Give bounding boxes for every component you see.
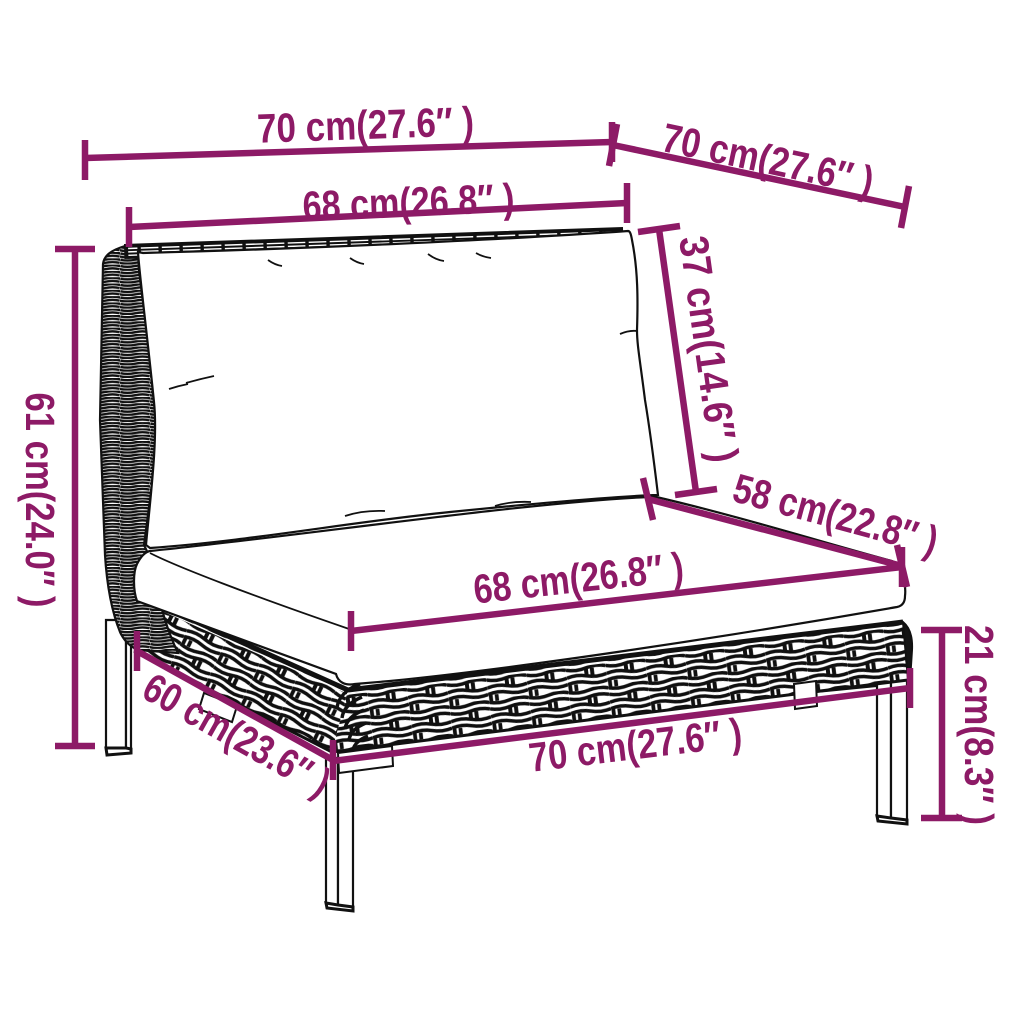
svg-text:21 cm(8.3″ ): 21 cm(8.3″ ): [956, 625, 1002, 825]
svg-text:70 cm(27.6″ ): 70 cm(27.6″ ): [256, 98, 474, 152]
svg-text:61 cm(24.0″ ): 61 cm(24.0″ ): [17, 393, 63, 608]
svg-text:68 cm(26.8″ ): 68 cm(26.8″ ): [302, 175, 516, 229]
